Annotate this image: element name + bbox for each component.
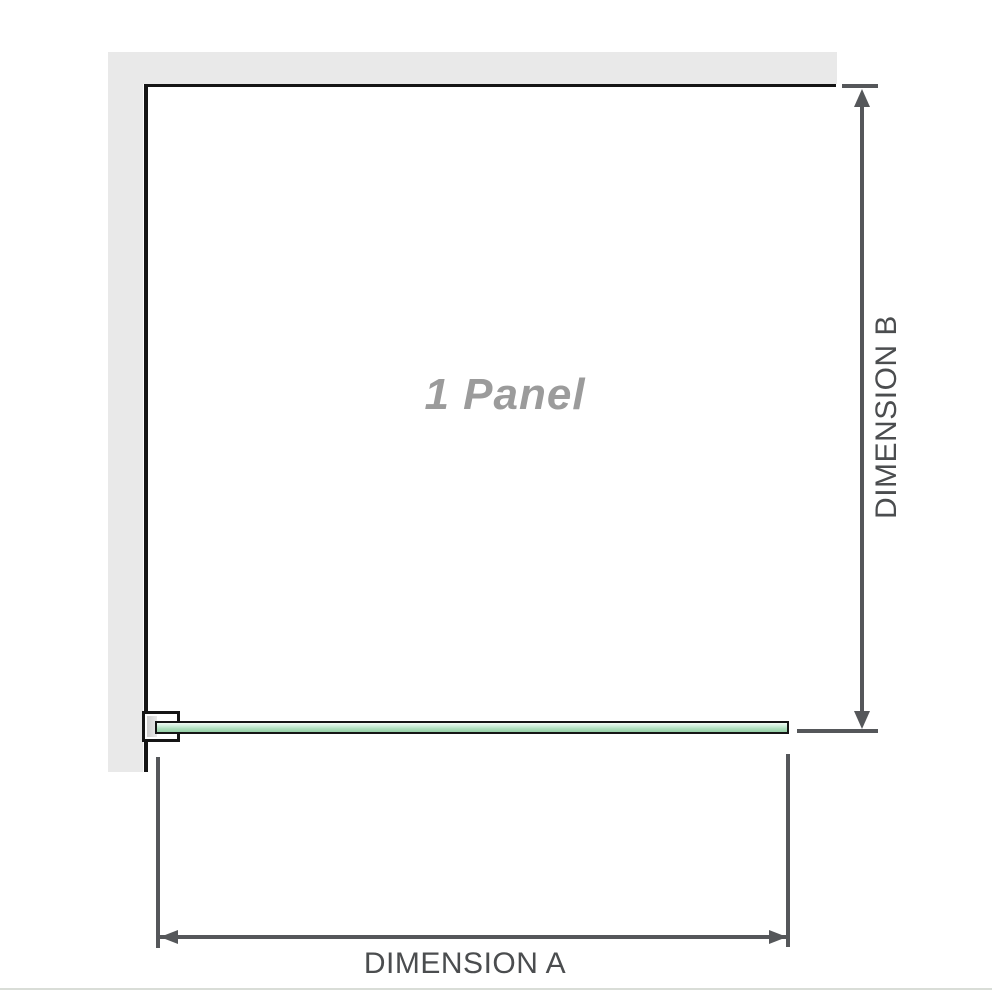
arrow-up-icon (854, 89, 870, 107)
dimension-a-line (160, 935, 787, 939)
dimension-b-label: DIMENSION B (869, 277, 905, 557)
arrow-right-icon (769, 930, 787, 944)
panel-count-label: 1 Panel (400, 370, 610, 420)
dimension-b-bottom-tick (797, 729, 878, 733)
wall-top (108, 52, 837, 84)
dimension-a-left-extension-line (156, 757, 160, 948)
panel-dimension-diagram: 1 Panel DIMENSION B DIMENSION A (0, 0, 1000, 1000)
structure-left-line (144, 84, 148, 772)
structure-top-line (145, 84, 836, 87)
dimension-a-right-extension-line (786, 754, 790, 947)
arrow-down-icon (854, 711, 870, 729)
wall-left (108, 52, 143, 772)
dimension-b-line (860, 95, 864, 715)
dimension-b-top-tick (842, 84, 878, 88)
glass-panel (155, 721, 789, 734)
arrow-left-icon (160, 930, 178, 944)
image-bottom-edge-line (0, 988, 992, 990)
dimension-a-label: DIMENSION A (335, 947, 595, 981)
